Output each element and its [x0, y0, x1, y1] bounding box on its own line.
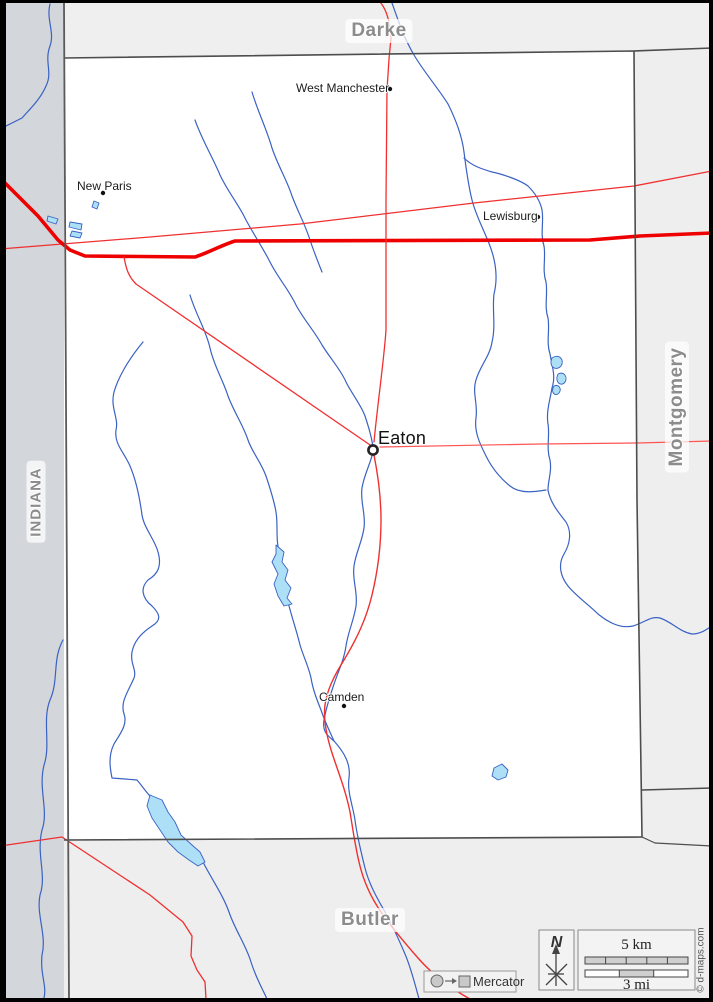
map-canvas: Darke Butler Montgomery INDIANA West Man…	[0, 0, 713, 1002]
preble-county-area	[64, 51, 642, 840]
marker-camden	[342, 704, 346, 708]
marker-new-paris	[101, 191, 105, 195]
frame-right	[709, 0, 713, 1002]
darke-area	[64, 3, 710, 58]
projection-box	[424, 971, 516, 992]
map-graphics	[0, 0, 713, 1002]
pond-squiggle-1	[551, 356, 562, 368]
frame-bottom	[0, 998, 713, 1002]
indiana-band	[3, 3, 65, 999]
scale-bar-km	[585, 957, 688, 964]
marker-lewisburg	[536, 215, 540, 219]
scale-bar-mi	[585, 970, 688, 977]
frame-top	[0, 0, 713, 3]
montgomery-area	[634, 48, 710, 790]
mercator-circle-icon	[431, 975, 443, 987]
marker-eaton-county-seat	[368, 445, 377, 454]
marker-west-manchester	[388, 87, 392, 91]
frame-left	[0, 0, 6, 1002]
pond-squiggle-2	[557, 373, 566, 384]
pond-squiggle-3	[553, 386, 561, 395]
mercator-square-icon	[459, 976, 470, 987]
